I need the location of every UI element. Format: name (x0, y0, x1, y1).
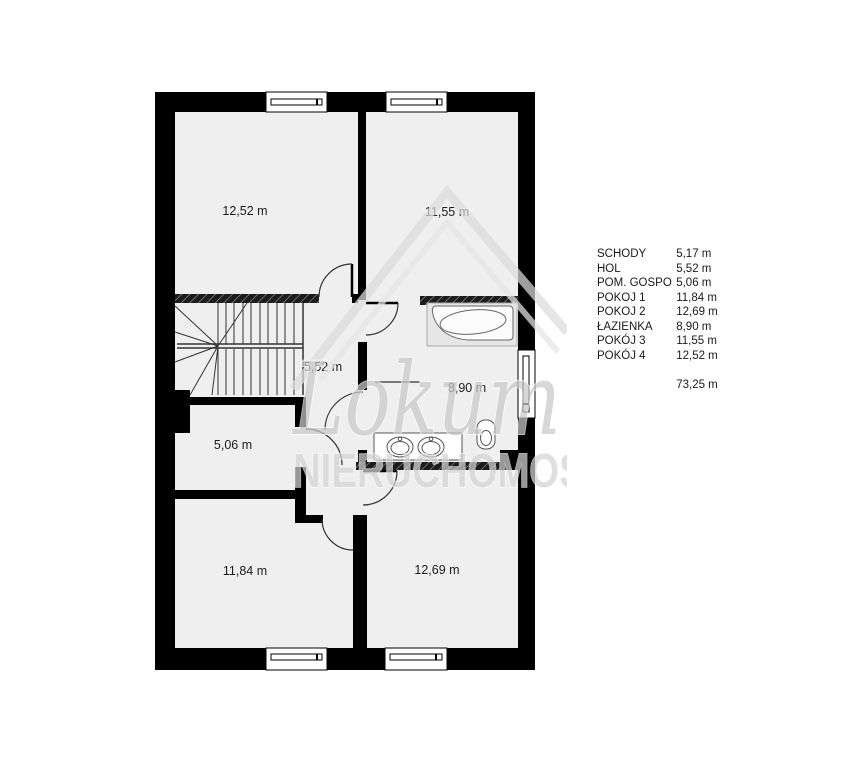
legend-room-area: 11,55 m (676, 334, 717, 349)
legend-row-pokoj-1: POKOJ 1 11,84 m (597, 291, 718, 306)
legend-room-area: 5,17 m (676, 247, 711, 262)
duct-block (165, 390, 190, 433)
legend-row-total: 73,25 m (597, 378, 718, 393)
window-bottom-left (266, 648, 327, 670)
legend-row-pokoj-2: POKOJ 2 12,69 m (597, 305, 718, 320)
legend-row-pom-gospo: POM. GOSPO 5,06 m (597, 276, 718, 291)
area-label-room-bottom-left: 11,84 m (223, 564, 267, 578)
window-bottom-right (385, 648, 447, 670)
legend-room-area: 5,52 m (676, 262, 711, 277)
legend-row-schody: SCHODY 5,17 m (597, 247, 718, 262)
window-top-left (266, 92, 327, 112)
legend-room-name: POM. GOSPO (597, 276, 673, 291)
legend-row-hol: HOL 5,52 m (597, 262, 718, 277)
floor-plan-svg: 12,52 m 11,55 m 5,52 m 8,90 m 5,06 m 11,… (0, 0, 857, 768)
legend-spacer (597, 363, 718, 378)
legend-room-area: 11,84 m (676, 291, 717, 306)
legend-total-area: 73,25 m (676, 378, 718, 393)
legend-row-pokoj-4: POKÓJ 4 12,52 m (597, 349, 718, 364)
legend-room-name: SCHODY (597, 247, 673, 262)
legend-room-area: 5,06 m (676, 276, 711, 291)
area-label-room-bottom-right: 12,69 m (414, 563, 459, 577)
legend-room-name: HOL (597, 262, 673, 277)
legend-room-area: 12,69 m (676, 305, 718, 320)
window-top-right (386, 92, 447, 112)
legend-row-lazienka: ŁAZIENKA 8,90 m (597, 320, 718, 335)
legend: SCHODY 5,17 m HOL 5,52 m POM. GOSPO 5,06… (597, 247, 718, 392)
legend-room-name: POKOJ 2 (597, 305, 673, 320)
legend-room-area: 8,90 m (676, 320, 711, 335)
watermark-subtitle-text: NIERUCHOMOŚCI (293, 443, 623, 498)
legend-room-name: POKÓJ 3 (597, 334, 673, 349)
watermark-brand-text: Lokum (291, 341, 561, 458)
legend-room-name: POKOJ 1 (597, 291, 673, 306)
legend-room-name: ŁAZIENKA (597, 320, 673, 335)
area-label-utility: 5,06 m (214, 438, 252, 452)
legend-room-name: POKÓJ 4 (597, 349, 673, 364)
legend-row-pokoj-3: POKÓJ 3 11,55 m (597, 334, 718, 349)
area-label-room-top-left: 12,52 m (222, 204, 267, 218)
floor-plan-page: 12,52 m 11,55 m 5,52 m 8,90 m 5,06 m 11,… (0, 0, 857, 768)
legend-room-area: 12,52 m (676, 349, 718, 364)
